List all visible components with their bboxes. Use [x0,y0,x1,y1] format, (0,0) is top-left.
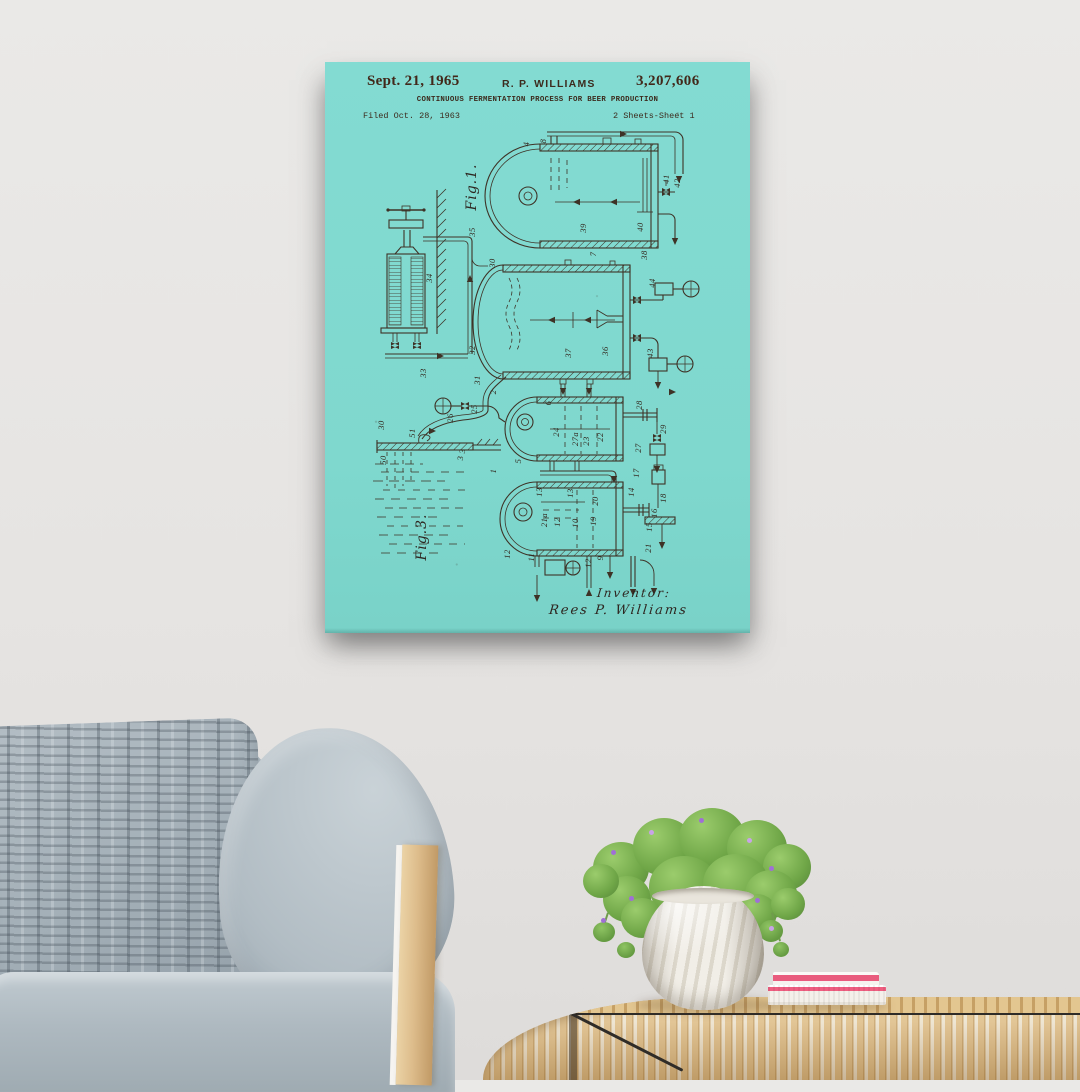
part-label-37: 37 [563,348,573,358]
part-label-31: 31 [472,375,482,385]
part-label-7: 7 [588,252,598,257]
couch-wood-frame [396,845,439,1086]
part-label-42: 42 [672,178,682,188]
plant-pot [642,886,764,1010]
part-label-20: 20 [590,496,600,506]
part-label-9: 9 [595,556,605,561]
part-label-30: 30 [376,420,386,430]
book-thick [768,985,886,1005]
part-label-51: 51 [407,428,417,438]
part-label-3: 3 [457,449,467,454]
part-label-5: 5 [513,459,523,464]
part-label-35: 35 [467,227,477,237]
part-label-33: 33 [418,368,428,378]
part-label-22: 22 [595,432,605,442]
plant-pot-rim [652,888,754,904]
part-label-23: 23 [581,436,591,446]
part-label-11: 11 [526,553,536,562]
part-label-16: 16 [649,508,659,518]
part-label-41: 41 [661,174,671,184]
part-label-50: 50 [378,455,388,465]
part-label-12: 12 [502,549,512,559]
part-label-1: 1 [488,469,498,474]
part-label-4: 4 [521,142,531,147]
part-label-13: 13 [565,488,575,498]
part-label-10: 10 [570,518,580,528]
part-label-28: 28 [634,400,644,410]
part-label-12: 12 [552,517,562,527]
part-label-34: 34 [424,273,434,283]
part-label-3: 3 [455,456,465,461]
part-label-38: 38 [639,250,649,260]
part-label-18: 18 [658,493,668,503]
patent-poster: Sept. 21, 1965 R. P. WILLIAMS 3,207,606 … [325,62,750,633]
part-label-27a: 27a [570,432,580,446]
couch-seat-cushion [0,972,455,1092]
part-label-30: 30 [487,258,497,268]
part-label-15: 15 [644,522,654,532]
figure-label-fig1: Fig.1. [464,164,480,211]
diagram-label-layer: 4841424039387353433303231237364443626252… [325,62,750,633]
part-label-43: 43 [645,348,655,358]
part-label-40: 40 [635,222,645,232]
part-label-13: 13 [534,487,544,497]
part-label-32: 32 [467,345,477,355]
part-label-6: 6 [543,401,553,406]
part-label-29: 29 [658,424,668,434]
part-label-2: 2 [488,390,498,395]
inventor-signature: Rees P. Williams [548,603,688,618]
part-label-26: 26 [445,413,455,423]
part-label-19: 19 [588,516,598,526]
part-label-25: 25 [469,404,479,414]
part-label-8: 8 [538,139,548,144]
room-scene: Sept. 21, 1965 R. P. WILLIAMS 3,207,606 … [0,0,1080,1080]
part-label-21a: 21a [539,513,549,527]
part-label-21: 21 [643,543,653,553]
book-stack [768,972,886,1006]
part-label-24: 24 [551,427,561,437]
book-thin [773,972,879,986]
part-label-12: 12 [583,558,593,568]
figure-label-fig3: Fig.3. [414,514,430,561]
rattan-seam [569,1012,577,1080]
part-label-36: 36 [600,346,610,356]
part-label-27: 27 [633,443,643,453]
part-label-17: 17 [631,468,641,478]
part-label-44: 44 [647,278,657,288]
inventor-label: Inventor: [596,586,671,600]
part-label-14: 14 [626,487,636,497]
part-label-39: 39 [578,223,588,233]
